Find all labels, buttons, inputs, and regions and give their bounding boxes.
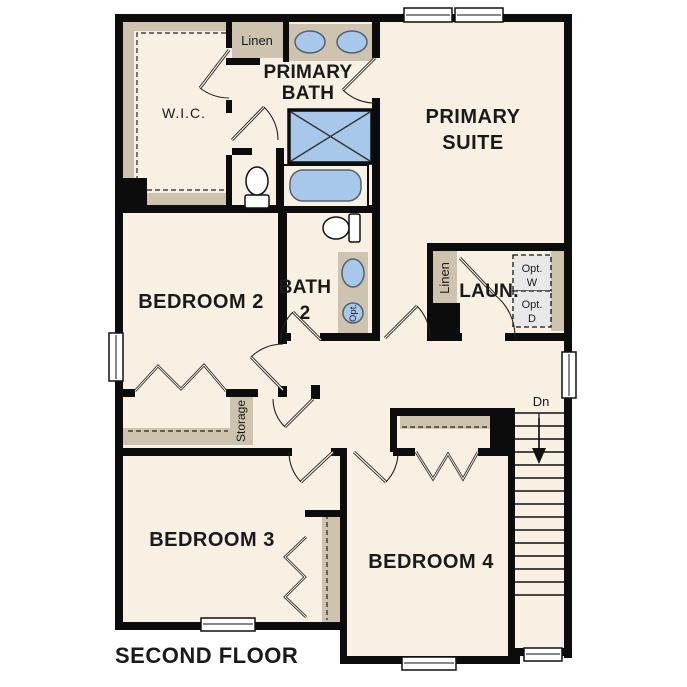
stairs-down-label: Dn bbox=[533, 394, 550, 409]
bedroom4-label: BEDROOM 4 bbox=[368, 551, 494, 573]
bath2-label: BATH bbox=[279, 277, 332, 298]
optional-washer-label: W bbox=[527, 277, 538, 289]
bath2-label: 2 bbox=[300, 303, 311, 324]
storage-label: Storage bbox=[234, 400, 248, 442]
bedroom3-label: BEDROOM 3 bbox=[149, 529, 275, 551]
wic-shelf-left bbox=[123, 22, 134, 178]
wic-shelf-top bbox=[123, 22, 226, 31]
window bbox=[402, 657, 456, 670]
laundry-label: LAUN. bbox=[459, 281, 519, 302]
window bbox=[109, 333, 123, 381]
page-title: SECOND FLOOR bbox=[115, 643, 298, 668]
window bbox=[201, 618, 255, 631]
window bbox=[524, 648, 562, 661]
primary-bath-label: PRIMARY bbox=[263, 62, 352, 83]
optional-dryer-label: Opt. bbox=[522, 299, 543, 311]
bedroom2-label: BEDROOM 2 bbox=[138, 291, 264, 313]
sink-icon bbox=[295, 31, 325, 53]
chase-block bbox=[115, 178, 147, 212]
optional-washer-label: Opt. bbox=[522, 263, 543, 275]
wic-shelf-bottom bbox=[134, 193, 226, 207]
floor-plan-page: W.I.C. Linen PRIMARY BATH PRIMARY SUITE … bbox=[0, 0, 687, 687]
window bbox=[455, 8, 503, 22]
toilet-icon bbox=[323, 214, 360, 242]
primary-bath-label: BATH bbox=[282, 83, 335, 104]
window bbox=[562, 352, 576, 398]
bedroom3-closet-shelf bbox=[322, 512, 340, 622]
sink-icon bbox=[337, 31, 367, 53]
optional-sink-label: Opt. bbox=[348, 304, 359, 322]
toilet-icon bbox=[245, 167, 269, 208]
optional-dryer-label: D bbox=[528, 313, 536, 325]
laundry-linen-label: Linen bbox=[437, 262, 452, 294]
laundry-counter bbox=[551, 251, 564, 331]
sink-icon bbox=[342, 259, 364, 287]
linen-label: Linen bbox=[241, 33, 273, 48]
window bbox=[404, 8, 452, 22]
floor-plan-drawing: W.I.C. Linen PRIMARY BATH PRIMARY SUITE … bbox=[0, 0, 687, 687]
bathtub-icon bbox=[283, 165, 368, 207]
primary-suite-label: PRIMARY bbox=[426, 106, 521, 128]
primary-suite-label: SUITE bbox=[442, 132, 503, 154]
wic-label: W.I.C. bbox=[162, 105, 206, 121]
